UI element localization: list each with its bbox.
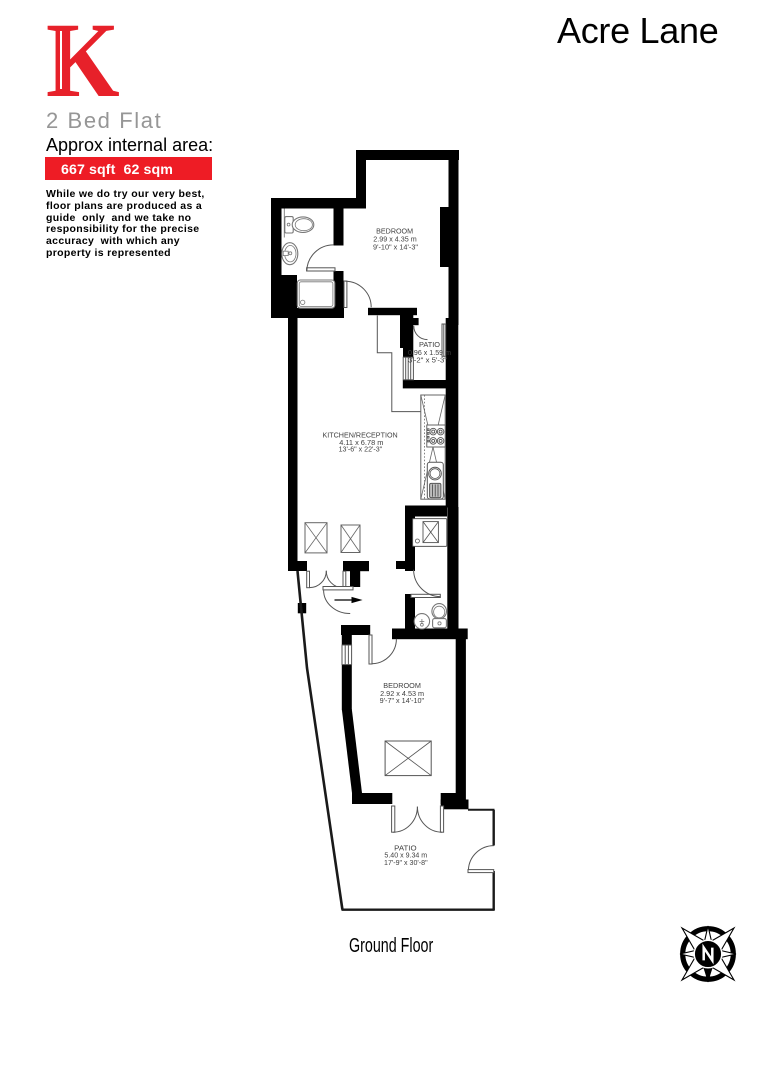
svg-text:17'-9" x 30'-8": 17'-9" x 30'-8" (384, 858, 428, 867)
svg-text:13'-6" x 22'-3": 13'-6" x 22'-3" (339, 445, 383, 454)
svg-text:9'-7" x 14'-10": 9'-7" x 14'-10" (380, 696, 425, 705)
svg-text:3'-2" x 5'-3": 3'-2" x 5'-3" (408, 355, 447, 364)
svg-text:9'-10" x 14'-3": 9'-10" x 14'-3" (373, 242, 418, 251)
